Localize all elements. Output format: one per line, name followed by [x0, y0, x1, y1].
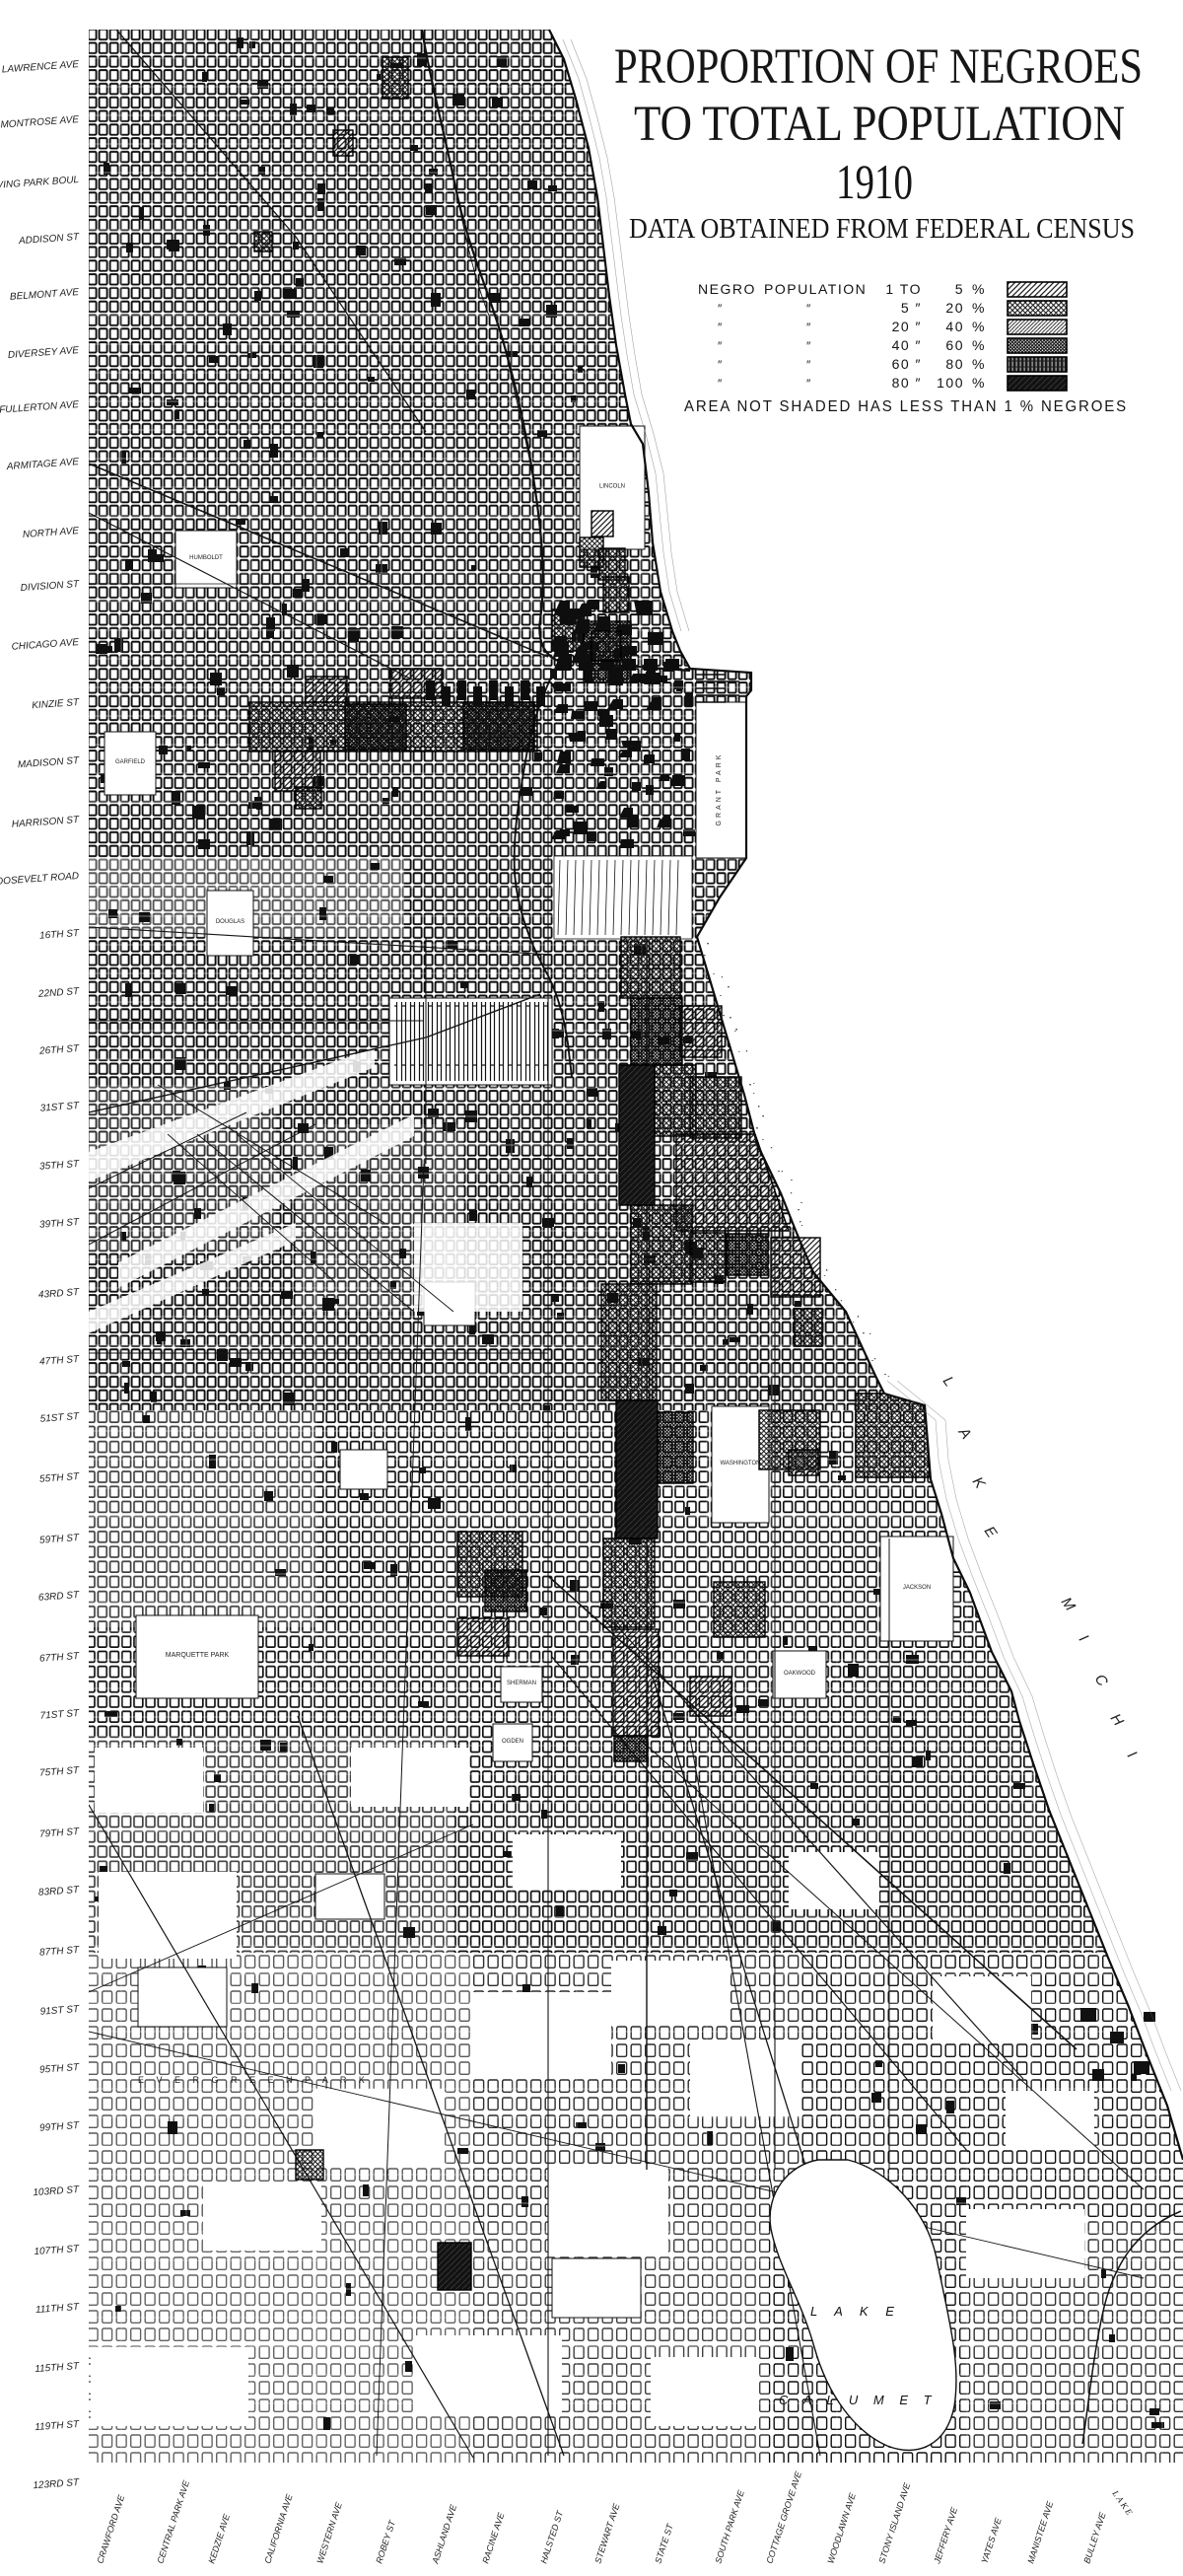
- svg-text:″: ″: [806, 358, 812, 372]
- svg-text:″: ″: [718, 377, 724, 391]
- svg-text:DOUGLAS: DOUGLAS: [216, 919, 244, 925]
- svg-text:″: ″: [806, 302, 812, 316]
- svg-text:%: %: [972, 356, 986, 372]
- svg-text:LINCOLN: LINCOLN: [599, 484, 625, 490]
- svg-text:″: ″: [806, 339, 812, 353]
- svg-text:HUMBOLDT: HUMBOLDT: [189, 555, 223, 561]
- svg-text:40 ″: 40 ″: [892, 337, 922, 353]
- svg-text:C A L U M E T: C A L U M E T: [779, 2393, 938, 2407]
- svg-text:WASHINGTON: WASHINGTON: [720, 1461, 760, 1467]
- svg-text:OGDEN: OGDEN: [502, 1739, 523, 1745]
- svg-text:TO TOTAL POPULATION: TO TOTAL POPULATION: [634, 97, 1125, 152]
- svg-text:″: ″: [718, 302, 724, 316]
- svg-text:″: ″: [806, 321, 812, 334]
- svg-text:″: ″: [718, 339, 724, 353]
- svg-text:20 ″: 20 ″: [892, 319, 922, 334]
- svg-text:OAKWOOD: OAKWOOD: [784, 1671, 816, 1677]
- svg-text:60: 60: [945, 337, 964, 353]
- svg-text:AREA NOT SHADED HAS LESS THAN: AREA NOT SHADED HAS LESS THAN 1 % NEGROE…: [684, 398, 1128, 415]
- svg-text:1910: 1910: [836, 154, 913, 209]
- svg-text:40: 40: [945, 319, 964, 334]
- svg-text:GRANT PARK: GRANT PARK: [716, 752, 723, 826]
- svg-text:POPULATION: POPULATION: [764, 281, 867, 297]
- svg-text:60 ″: 60 ″: [892, 356, 922, 372]
- svg-text:80 ″: 80 ″: [892, 375, 922, 391]
- svg-text:GARFIELD: GARFIELD: [115, 759, 146, 765]
- svg-text:%: %: [972, 375, 986, 391]
- svg-text:%: %: [972, 281, 986, 297]
- svg-text:100: 100: [937, 375, 964, 391]
- svg-text:%: %: [972, 300, 986, 316]
- svg-text:80: 80: [945, 356, 964, 372]
- svg-text:″: ″: [718, 358, 724, 372]
- svg-text:″: ″: [718, 321, 724, 334]
- svg-text:5: 5: [955, 281, 964, 297]
- svg-text:″: ″: [806, 377, 812, 391]
- svg-text:DATA OBTAINED FROM FEDERAL CEN: DATA OBTAINED FROM FEDERAL CENSUS: [629, 214, 1135, 245]
- svg-text:E V E R G R E E N P A R K: E V E R G R E E N P A R K: [138, 2075, 370, 2085]
- svg-text:MARQUETTE PARK: MARQUETTE PARK: [166, 1652, 230, 1659]
- svg-text:JACKSON: JACKSON: [903, 1585, 931, 1591]
- svg-text:%: %: [972, 337, 986, 353]
- svg-text:NEGRO: NEGRO: [698, 281, 756, 297]
- svg-text:1 TO: 1 TO: [885, 281, 922, 297]
- svg-text:L A K E: L A K E: [810, 2304, 901, 2319]
- svg-text:%: %: [972, 319, 986, 334]
- svg-text:PROPORTION OF NEGROES: PROPORTION OF NEGROES: [614, 39, 1143, 95]
- svg-text:SHERMAN: SHERMAN: [507, 1681, 536, 1686]
- svg-text:5 ″: 5 ″: [901, 300, 922, 316]
- svg-text:20: 20: [945, 300, 964, 316]
